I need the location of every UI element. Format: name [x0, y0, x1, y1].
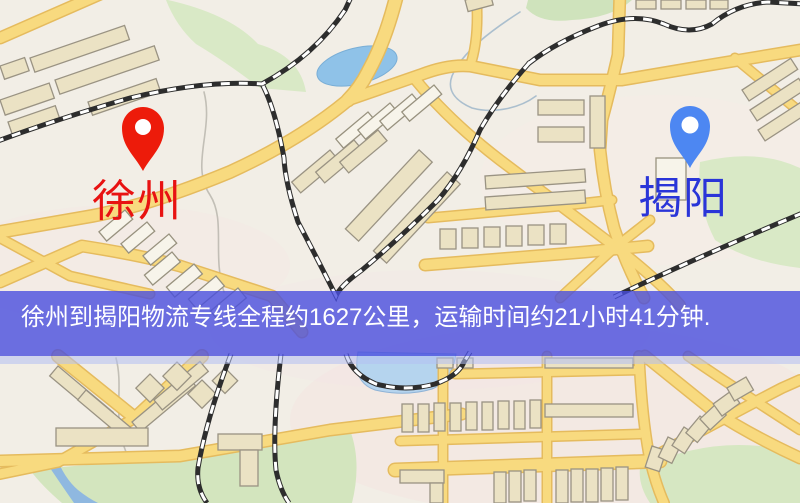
destination-pin-hole: [682, 117, 699, 134]
route-info-banner-fade: [0, 356, 800, 364]
route-info-text: 徐州到揭阳物流专线全程约1627公里，运输时间约21小时41分钟.: [0, 291, 710, 332]
route-info-banner: 徐州到揭阳物流专线全程约1627公里，运输时间约21小时41分钟.: [0, 291, 800, 356]
map-canvas: [0, 0, 800, 503]
map-screenshot: 徐州 揭阳 徐州到揭阳物流专线全程约1627公里，运输时间约21小时41分钟.: [0, 0, 800, 503]
origin-city-label: 徐州: [92, 180, 182, 224]
origin-pin-hole: [135, 119, 151, 135]
destination-city-label: 揭阳: [638, 177, 728, 221]
